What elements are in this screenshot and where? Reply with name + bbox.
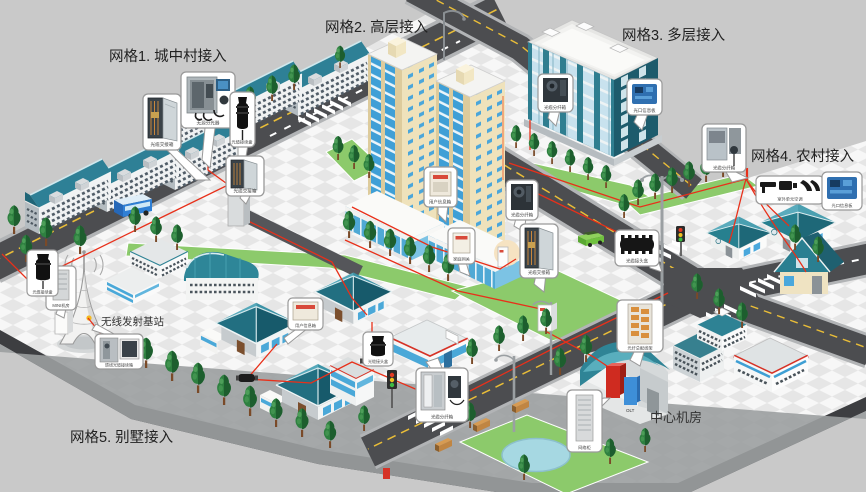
- svg-text:用户信息箱: 用户信息箱: [295, 322, 316, 329]
- svg-text:中心机房: 中心机房: [650, 410, 702, 425]
- svg-text:无源分光器: 无源分光器: [197, 120, 220, 127]
- svg-text:MINI机房: MINI机房: [52, 302, 69, 309]
- svg-text:光缆接续盒: 光缆接续盒: [232, 139, 254, 146]
- svg-text:光缆交接箱: 光缆交接箱: [234, 188, 257, 195]
- svg-text:OLT: OLT: [626, 408, 635, 413]
- svg-text:光缆分纤箱: 光缆分纤箱: [511, 212, 534, 219]
- svg-text:室外单元空调: 室外单元空调: [777, 196, 802, 203]
- svg-text:光缆分纤箱: 光缆分纤箱: [713, 165, 736, 172]
- svg-text:网格3. 多层接入: 网格3. 多层接入: [622, 27, 725, 44]
- svg-text:光缆分纤箱: 光缆分纤箱: [544, 104, 567, 111]
- svg-text:光缆接头盒: 光缆接头盒: [368, 358, 388, 364]
- svg-text:光缆交接箱: 光缆交接箱: [528, 269, 551, 276]
- svg-text:光缆接头盒: 光缆接头盒: [626, 258, 649, 265]
- svg-text:网格4. 农村接入: 网格4. 农村接入: [751, 148, 854, 165]
- svg-text:光纤总配线架: 光纤总配线架: [627, 345, 652, 352]
- svg-text:网格1. 城中村接入: 网格1. 城中村接入: [109, 48, 227, 65]
- svg-text:光缆分纤箱: 光缆分纤箱: [431, 414, 454, 421]
- svg-text:无线发射基站: 无线发射基站: [101, 315, 164, 328]
- svg-text:网格5. 别墅接入: 网格5. 别墅接入: [70, 429, 173, 446]
- svg-text:家庭网关: 家庭网关: [453, 256, 470, 263]
- svg-text:网络柜: 网络柜: [578, 444, 591, 451]
- svg-text:光口信息板: 光口信息板: [634, 107, 657, 114]
- svg-text:馈线光缆接续箱: 馈线光缆接续箱: [105, 362, 133, 368]
- svg-text:网格2. 高层接入: 网格2. 高层接入: [325, 19, 428, 36]
- svg-text:光缆接续盒: 光缆接续盒: [33, 289, 53, 295]
- svg-text:用户信息箱: 用户信息箱: [429, 199, 452, 206]
- svg-text:光口信息板: 光口信息板: [832, 202, 854, 209]
- svg-text:光缆交接箱: 光缆交接箱: [151, 141, 174, 148]
